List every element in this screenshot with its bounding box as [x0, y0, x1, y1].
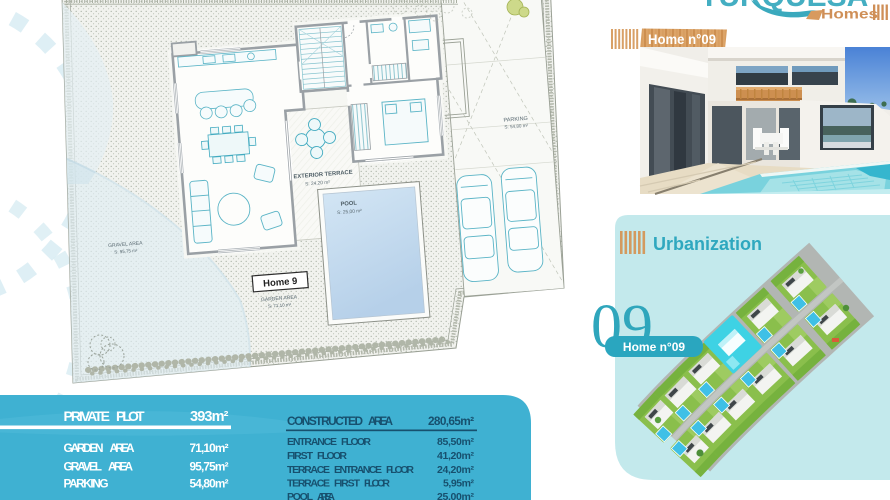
svg-text:Home n°09: Home n°09 [648, 31, 716, 47]
svg-text:Home n°09: Home n°09 [623, 340, 685, 354]
svg-text:TERRACEFIRSTFLOOR5,95m²: TERRACEFIRSTFLOOR5,95m² [287, 478, 475, 490]
svg-text:CONSTRUCTEDAREA280,65m²: CONSTRUCTEDAREA280,65m² [287, 414, 474, 428]
svg-text:Urbanization: Urbanization [653, 234, 762, 254]
svg-text:TERRACEENTRANCEFLOOR24,20m²: TERRACEENTRANCEFLOOR24,20m² [287, 464, 475, 476]
svg-text:Homes: Homes [821, 6, 878, 22]
svg-text:393m²: 393m² [190, 409, 229, 425]
svg-text:PRIVATEPLOT: PRIVATEPLOT [64, 408, 145, 424]
